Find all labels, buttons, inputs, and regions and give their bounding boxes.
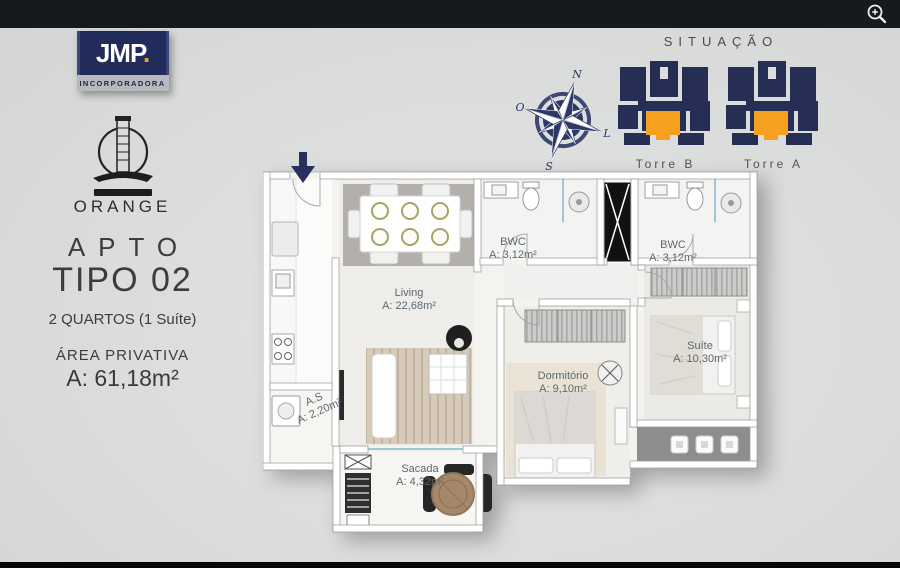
unit-area-label: ÁREA PRIVATIVA [20,347,225,364]
dorm-shelf [615,408,627,444]
ac-units [671,436,738,453]
jmp-logo-subtext: INCORPORADORA [77,75,169,91]
orange-logo-name: ORANGE [63,197,183,217]
zoom-in-icon [866,3,888,25]
room-label-living: LivingA: 22,68m² [382,287,436,313]
tower-b-footprint [618,59,710,147]
bottom-bar [0,562,900,568]
tower-a: Torre A [724,59,820,171]
dorm-wardrobe [525,310,625,342]
dorm-bed [515,392,595,478]
towers-row: Torre B [612,59,824,171]
dining-set [348,184,472,264]
compass-east-label: L [602,127,610,140]
compass-north-label: N [571,68,582,81]
room-label-sacada: SacadaA: 4,32m² [396,463,444,489]
kitchen [270,179,298,383]
sidebar: JMP. INCORPORADORA ORANGE APTO TIPO 02 2… [20,0,225,568]
zoom-in-button[interactable] [862,0,892,28]
tower-a-footprint [726,59,818,147]
tower-b: Torre B [616,59,712,171]
jmp-logo-dot: . [143,38,149,68]
orange-logo: ORANGE [63,116,183,217]
page-background: JMP. INCORPORADORA ORANGE APTO TIPO 02 2… [0,0,900,568]
situacao-section: SITUAÇÃO [612,34,824,171]
dorm-fan [598,361,622,385]
room-label-dormitorio: DormitórioA: 9,10m² [538,370,589,396]
room-label-bwc1: BWCA: 3,12m² [489,236,537,262]
room-label-suite: SuíteA: 10,30m² [673,340,727,366]
unit-type: TIPO 02 [20,261,225,300]
jmp-logo: JMP. INCORPORADORA [77,31,169,91]
compass-west-label: O [515,101,524,114]
unit-rooms-line: 2 QUARTOS (1 Suíte) [20,311,225,328]
shaft [604,182,631,262]
orange-logo-tagline-bar [94,189,152,196]
unit-label: APTO [20,232,225,263]
jmp-logo-text: JMP. [96,38,149,69]
top-bar [0,0,900,28]
entry-arrow-icon [289,152,317,184]
orange-tower-icon [63,116,183,184]
unit-area-value: A: 61,18m² [20,365,225,392]
situacao-title: SITUAÇÃO [612,34,824,49]
jmp-logo-box: JMP. [77,31,169,75]
room-label-bwc2: BWCA: 3,12m² [649,239,697,265]
